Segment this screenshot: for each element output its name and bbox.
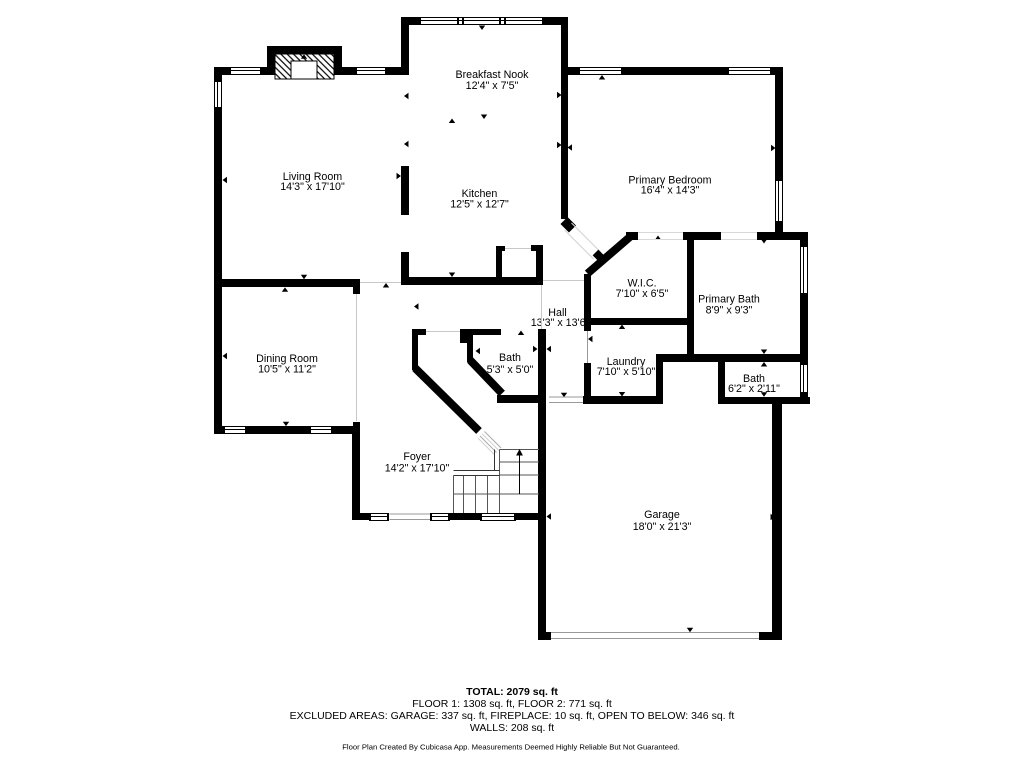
svg-text:14'2" x 17'10": 14'2" x 17'10" [385,463,450,475]
svg-text:14'3" x 17'10": 14'3" x 17'10" [280,181,345,193]
svg-text:12'4" x 7'5": 12'4" x 7'5" [466,80,519,92]
svg-text:Bath: Bath [499,352,521,364]
svg-text:10'5" x 11'2": 10'5" x 11'2" [258,363,316,375]
svg-text:16'4" x 14'3": 16'4" x 14'3" [641,185,700,197]
svg-text:7'10" x 5'10": 7'10" x 5'10" [597,366,656,378]
svg-text:Foyer: Foyer [403,451,431,463]
svg-text:EXCLUDED AREAS: GARAGE: 337 sq: EXCLUDED AREAS: GARAGE: 337 sq. ft, FIRE… [290,710,735,722]
svg-text:13'3" x 13'6": 13'3" x 13'6" [531,317,590,329]
svg-text:18'0" x 21'3": 18'0" x 21'3" [633,521,692,533]
svg-text:8'9" x 9'3": 8'9" x 9'3" [706,304,753,316]
svg-text:Garage: Garage [644,509,680,521]
svg-text:Floor Plan Created By Cubicasa: Floor Plan Created By Cubicasa App. Meas… [342,743,680,752]
svg-text:TOTAL: 2079 sq. ft: TOTAL: 2079 sq. ft [466,686,558,698]
svg-text:5'3" x 5'0": 5'3" x 5'0" [487,364,534,376]
svg-text:12'5" x 12'7": 12'5" x 12'7" [450,198,509,210]
svg-text:WALLS: 208 sq. ft: WALLS: 208 sq. ft [470,722,554,734]
svg-text:7'10" x 6'5": 7'10" x 6'5" [616,288,669,300]
svg-text:6'2" x 2'11": 6'2" x 2'11" [728,383,780,395]
svg-text:FLOOR 1: 1308 sq. ft, FLOOR 2:: FLOOR 1: 1308 sq. ft, FLOOR 2: 771 sq. f… [412,698,612,710]
